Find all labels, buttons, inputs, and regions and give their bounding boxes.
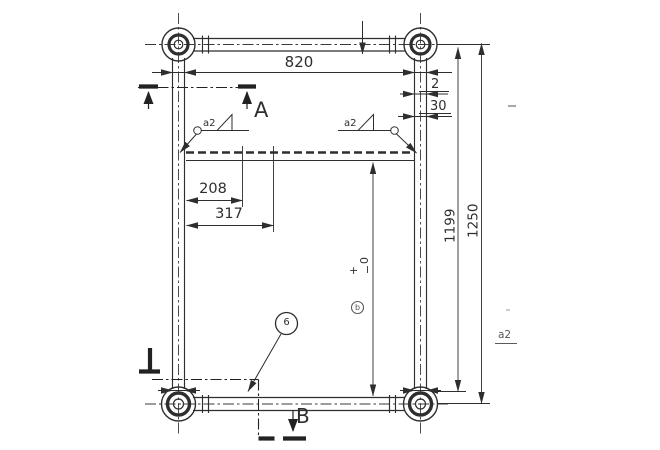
frame-tubes — [173, 36, 427, 414]
dim-30-label: 30 — [430, 100, 447, 113]
dim-317-label: 317 — [207, 207, 251, 222]
fillet-weld-triangle-icon — [217, 115, 232, 131]
dim-1250-label: 1250 — [467, 200, 481, 242]
datum-b-label: b — [352, 304, 363, 312]
dim-1199-label: 1199 — [444, 205, 458, 247]
centerlines — [145, 13, 448, 436]
weld-note-right: a2 — [344, 119, 357, 129]
fillet-weld-triangle-icon — [358, 115, 374, 131]
weld-note-margin: a2 — [498, 330, 511, 341]
section-b-label: B — [296, 406, 310, 426]
section-a-label: A — [254, 100, 268, 121]
tolerance-minus: − — [362, 265, 373, 274]
tolerance-plus: + — [349, 265, 358, 276]
margin-marks — [495, 106, 517, 344]
crossbar — [186, 153, 414, 161]
technical-drawing: 820 2 30 208 317 1199 1250 A B 6 b a2 a2… — [0, 0, 660, 450]
drawing-linework — [0, 0, 660, 450]
dim-2-label: 2 — [431, 78, 439, 91]
dim-820-label: 820 — [277, 55, 321, 70]
weld-note-left: a2 — [203, 119, 216, 129]
balloon-6-label: 6 — [279, 318, 294, 328]
section-a-marker — [138, 87, 256, 110]
section-b-marker — [139, 348, 306, 439]
dim-208-label: 208 — [191, 182, 235, 197]
tolerance-zero: 0 — [359, 257, 370, 264]
